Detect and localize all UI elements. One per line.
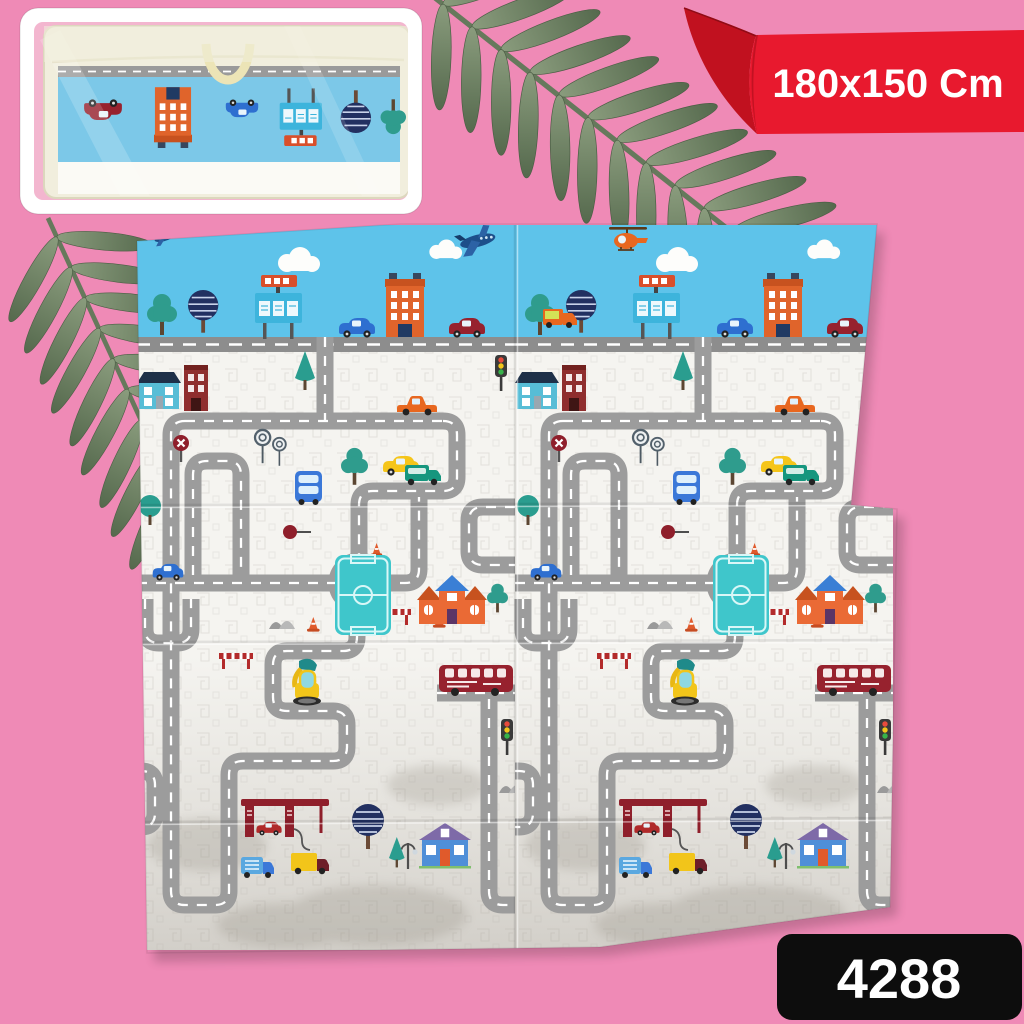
- badge-number: 4288: [837, 947, 962, 1010]
- scene: 180x150 Cm 4288: [0, 0, 1024, 1024]
- packed-playmat-photo: [34, 22, 410, 200]
- product-photo: 180x150 Cm 4288: [0, 0, 1024, 1024]
- inset-photo-frame: [20, 8, 422, 214]
- playmat: [137, 223, 903, 953]
- id-badge: 4288: [777, 934, 1022, 1020]
- ribbon-size-label: 180x150 Cm: [772, 62, 1003, 106]
